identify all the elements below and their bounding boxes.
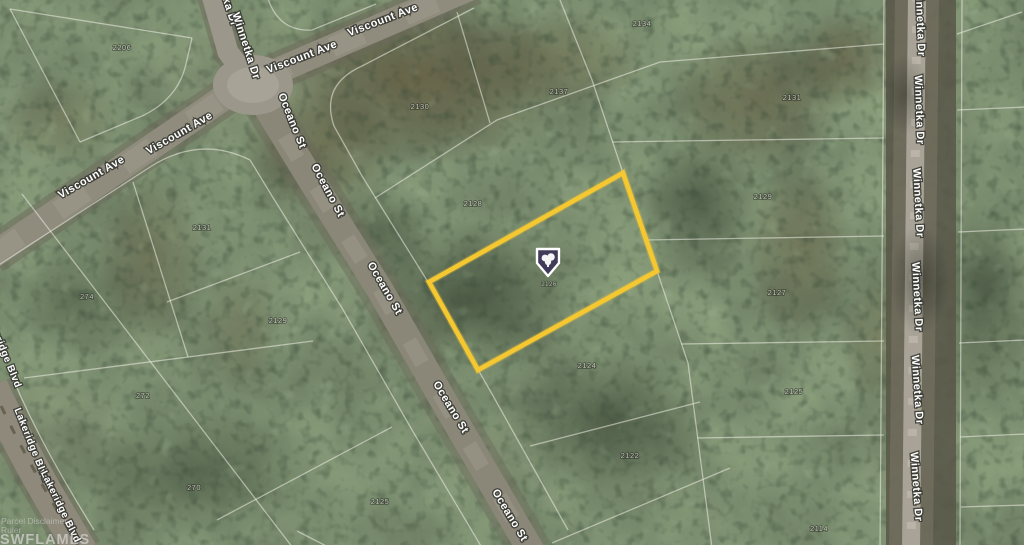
parcel-number-label: 2124 — [578, 361, 597, 370]
parcel-number-label: 2134 — [633, 19, 652, 28]
parcel-number-label: 2137 — [550, 87, 569, 96]
parcel-number-label: 2129 — [269, 316, 288, 325]
parcel-number-label: 2130 — [411, 102, 430, 111]
parcel-number-label: 272 — [136, 391, 150, 400]
road-label-winnetka-dr: Winnetka Dr — [912, 75, 926, 145]
parcel-number-label: 2128 — [464, 199, 483, 208]
parcel-number-label: 2131 — [783, 93, 802, 102]
parcel-number-label: 2125 — [785, 387, 804, 396]
parcel-number-label: 2122 — [621, 451, 640, 460]
parcel-number-label: 2126 — [541, 282, 557, 288]
parcel-number-label: 2127 — [768, 288, 787, 297]
parcel-number-label: 2129 — [754, 192, 773, 201]
parcel-number-label: 2131 — [193, 223, 212, 232]
parcel-number-label: 2114 — [810, 524, 828, 533]
satellite-map: 2126 2206 2130 2137 2134 2131 2129 2127 … — [0, 0, 1024, 545]
parcel-number-label: 270 — [187, 483, 201, 492]
road-label-winnetka-dr: Winnetka Dr — [913, 0, 927, 57]
parcel-number-label: 2206 — [113, 43, 132, 52]
listing-photo-map: 2126 2206 2130 2137 2134 2131 2129 2127 … — [0, 0, 1024, 545]
parcel-number-label: 274 — [80, 292, 94, 301]
parcel-number-label: 2125 — [371, 497, 390, 506]
